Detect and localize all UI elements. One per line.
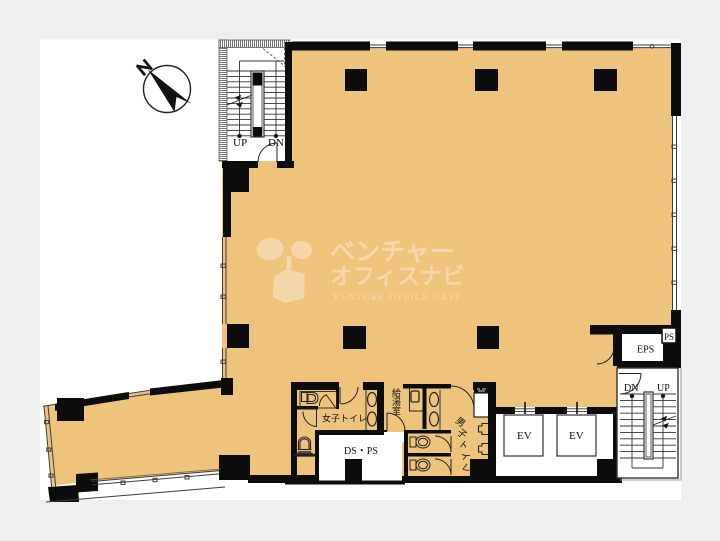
svg-text:VENTURE OFFICE NAVI: VENTURE OFFICE NAVI xyxy=(333,293,460,303)
svg-text:ベンチャー: ベンチャー xyxy=(330,239,455,266)
svg-text:EV: EV xyxy=(569,430,584,442)
svg-text:EPS: EPS xyxy=(637,345,654,356)
svg-text:UP: UP xyxy=(657,383,670,394)
svg-text:DN: DN xyxy=(624,383,638,394)
svg-text:UP: UP xyxy=(233,137,247,149)
svg-text:女子トイレ: 女子トイレ xyxy=(322,413,367,424)
svg-text:EV: EV xyxy=(517,430,532,442)
svg-text:PS: PS xyxy=(664,332,674,342)
svg-text:室: 室 xyxy=(392,405,401,416)
svg-text:DS・PS: DS・PS xyxy=(344,446,378,457)
svg-text:オフィスナビ: オフィスナビ xyxy=(330,264,465,289)
